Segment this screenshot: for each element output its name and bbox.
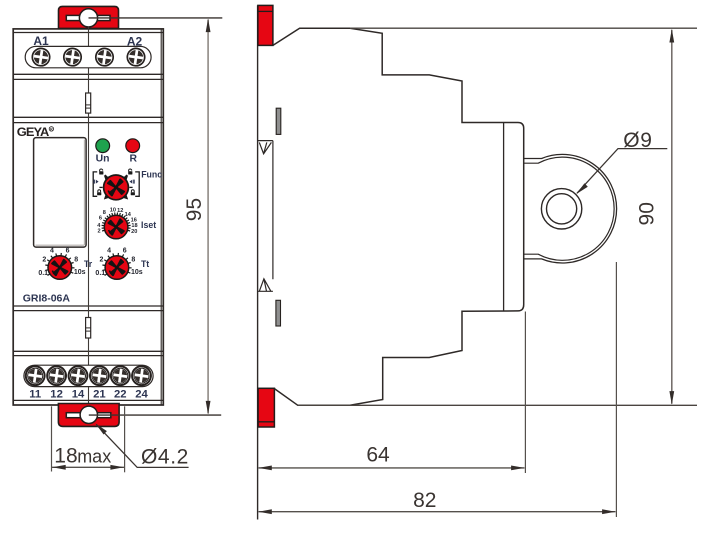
- svg-text:24: 24: [135, 388, 148, 400]
- svg-text:8: 8: [103, 210, 106, 216]
- svg-text:R: R: [50, 128, 53, 132]
- svg-text:Tt: Tt: [141, 259, 149, 269]
- svg-text:max: max: [77, 446, 111, 466]
- svg-text:14: 14: [72, 388, 85, 400]
- svg-text:11: 11: [29, 388, 41, 400]
- svg-text:22: 22: [114, 388, 127, 400]
- svg-text:Ø4.2: Ø4.2: [141, 446, 189, 469]
- svg-text:12: 12: [50, 388, 63, 400]
- svg-text:90: 90: [635, 202, 658, 225]
- svg-text:6: 6: [123, 247, 127, 254]
- svg-text:2: 2: [99, 256, 103, 263]
- svg-text:10s: 10s: [131, 269, 143, 276]
- svg-text:4: 4: [50, 247, 54, 254]
- svg-text:64: 64: [366, 444, 390, 467]
- svg-text:10: 10: [110, 208, 116, 214]
- svg-text:82: 82: [413, 489, 436, 512]
- svg-text:GRI8-06A: GRI8-06A: [23, 293, 71, 305]
- svg-text:A2: A2: [127, 34, 143, 48]
- svg-text:8: 8: [74, 257, 78, 264]
- svg-text:95: 95: [183, 198, 206, 221]
- svg-text:6: 6: [99, 215, 102, 221]
- svg-text:2: 2: [42, 256, 46, 263]
- svg-text:10s: 10s: [74, 269, 86, 276]
- svg-text:12: 12: [117, 208, 123, 214]
- svg-text:6: 6: [66, 247, 70, 254]
- svg-text:4: 4: [107, 247, 111, 254]
- svg-text:A1: A1: [33, 34, 49, 48]
- svg-text:R: R: [129, 154, 137, 165]
- svg-text:Iset: Iset: [141, 220, 156, 230]
- svg-text:20: 20: [131, 229, 137, 235]
- svg-text:0.1: 0.1: [95, 270, 105, 277]
- svg-text:Un: Un: [96, 154, 110, 165]
- svg-text:8: 8: [131, 257, 135, 264]
- svg-text:18: 18: [54, 444, 77, 467]
- svg-text:2: 2: [98, 228, 101, 234]
- svg-text:Tr: Tr: [84, 259, 93, 269]
- svg-text:Ø9: Ø9: [623, 129, 652, 152]
- svg-text:21: 21: [93, 388, 106, 400]
- svg-text:Func: Func: [141, 169, 162, 179]
- svg-text:0.1: 0.1: [38, 270, 48, 277]
